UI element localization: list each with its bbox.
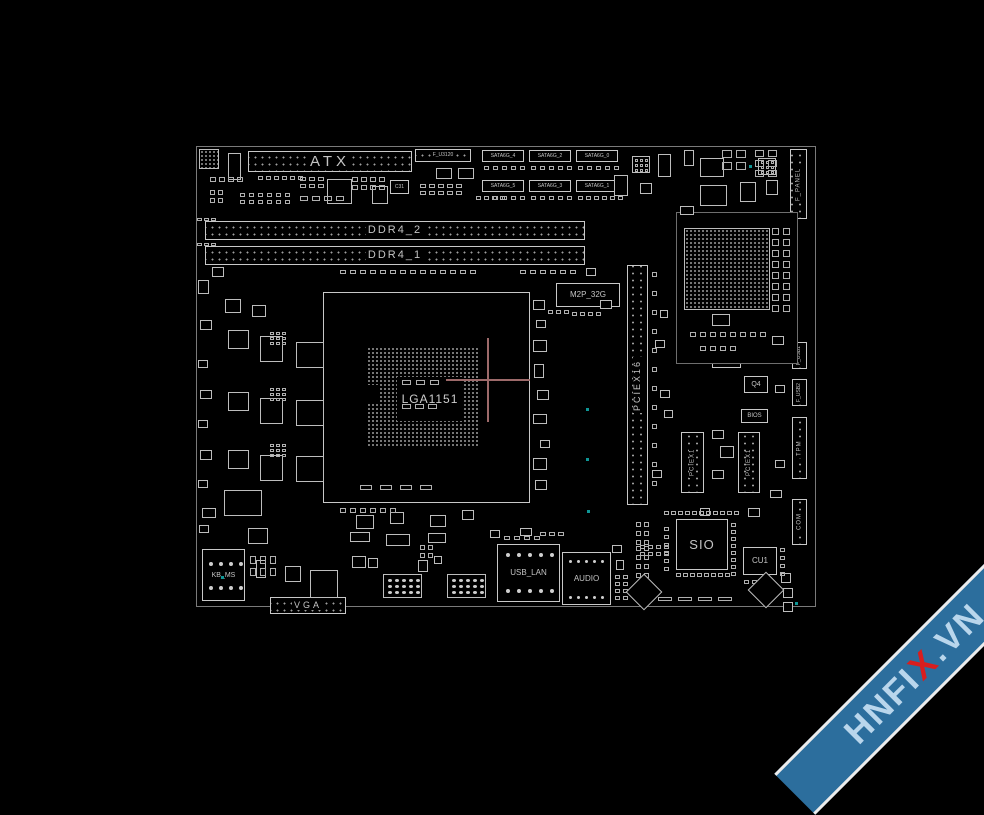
pin-dot [601,560,604,563]
pin-dot [209,586,213,590]
component-box [198,280,209,294]
component-box [434,556,442,564]
component-box [748,508,760,517]
cpu-socket[interactable]: LGA1151 [323,292,530,503]
pad [460,270,466,274]
pad [766,161,769,164]
component-box [520,528,532,536]
component-box [200,320,212,330]
pad [531,196,536,200]
pad [420,485,432,490]
pad [312,196,320,201]
net-highlight-dot [587,510,590,513]
pad [197,243,202,246]
pad [402,380,411,385]
kb-ms-connector[interactable]: KB_MS [202,549,245,601]
ddr4-1-slot[interactable]: DDR4_1 [205,246,585,265]
pin-dot [480,579,484,582]
pad [502,196,507,200]
pad [615,589,620,593]
pad [420,184,426,188]
pad [780,556,785,560]
pad [447,191,453,195]
pad [615,575,620,579]
component-box [533,414,547,424]
pad [270,454,274,457]
pin-dot [416,585,420,588]
cu1-chip[interactable]: CU1 [743,547,777,575]
pad [531,166,536,170]
q4-component[interactable]: Q4 [744,376,768,393]
vga-connector-label: VGA [292,601,324,610]
pin-dot [229,586,233,590]
pad [652,443,657,448]
component-box [712,430,724,439]
component-box [684,150,694,166]
component-box [200,450,212,460]
pad [761,166,764,169]
pad [402,404,411,409]
f-panel-header-label: F_PANEL [796,165,802,202]
c31-component[interactable]: C31 [390,180,409,194]
pad [282,454,286,457]
pin-dot [388,579,392,582]
pad [276,337,280,340]
pad [720,511,725,515]
pad [476,196,481,200]
pad [652,348,657,353]
pin-dot [480,585,484,588]
pad [415,404,424,409]
pin-dot [395,591,399,594]
f-u3120-header[interactable]: F_U3120 [415,149,471,162]
component-box [775,460,785,468]
pin-dot [550,589,554,593]
pad [645,164,648,167]
pad [380,485,392,490]
pad [352,185,358,190]
pad [623,575,628,579]
pad [636,564,641,569]
pad [727,511,732,515]
pad [282,342,286,345]
component-box [535,480,547,490]
pad [218,190,223,195]
pad [722,150,732,158]
pad [656,545,661,549]
pad [652,405,657,410]
component-box [212,267,224,277]
component-box [655,340,665,348]
pad [370,185,376,190]
pad [652,462,657,467]
pad [699,511,704,515]
pad [502,166,507,170]
pad [623,596,628,600]
sata6g-1-connector-label: SATA6G_1 [583,184,612,189]
pad [549,196,554,200]
pad [678,597,692,601]
pad [710,332,716,337]
pin-dot [585,596,588,599]
component-box [356,515,374,529]
pad [276,193,281,197]
pad [578,196,583,200]
pad [678,511,683,515]
pad [602,196,607,200]
pad [340,270,346,274]
pad [350,270,356,274]
pad [596,312,601,316]
component-box [248,528,268,544]
sata6g-3-connector-label: SATA6G_3 [536,184,565,189]
component-box [533,340,547,352]
pin-dot [480,591,484,594]
component-box [783,602,793,612]
pad [240,193,245,197]
cu1-chip-label: CU1 [750,557,770,565]
pad [783,239,790,246]
pad [240,200,245,204]
component-box [533,458,547,470]
pad [656,552,661,556]
pad [350,508,356,513]
pad [534,536,540,540]
f-panel-header[interactable]: F_PANEL [790,149,807,219]
pad [258,176,263,180]
pin-dot [459,585,463,588]
pad [635,159,638,162]
component-box [586,268,596,276]
pad [780,564,785,568]
component-box [228,153,241,180]
pad [260,568,266,576]
component-box [260,398,283,424]
pad [700,346,706,351]
pciex1-2-slot-label: PCIEX1 [746,447,752,478]
pad [270,556,276,564]
pad [520,196,525,200]
pad [282,393,286,396]
pad [664,535,669,539]
pad [783,261,790,268]
pad [470,270,476,274]
ddr4-2-slot-label: DDR4_2 [366,225,424,236]
pad [550,270,556,274]
com-header-label: COM [797,512,803,533]
pin-dot [569,596,572,599]
pad [430,380,439,385]
pad [549,532,555,536]
pad [340,508,346,513]
pad [610,196,615,200]
net-highlight-dot [749,165,752,168]
ddr4-2-slot[interactable]: DDR4_2 [205,221,585,240]
component-box [640,183,652,194]
pad [772,250,779,257]
pad [783,250,790,257]
sata6g-5-connector-label: SATA6G_5 [489,184,518,189]
pad [282,332,286,335]
pad [260,556,266,564]
pad [605,166,610,170]
pad [664,552,669,556]
pad [270,568,276,576]
component-box [225,299,241,313]
pad [636,522,641,527]
pad [731,523,736,527]
pad [514,536,520,540]
pad [740,332,746,337]
pad [766,171,769,174]
pad [336,196,344,201]
pad [734,511,739,515]
pad [361,185,367,190]
pad [276,393,280,396]
pad [210,190,215,195]
pad [772,283,779,290]
pad [596,166,601,170]
pad [380,508,386,513]
pad [588,312,593,316]
pad [309,177,315,181]
pad [540,166,545,170]
pad [652,329,657,334]
pad [652,310,657,315]
sata6g-4-connector[interactable]: SATA6G_4 [482,150,524,162]
pin-dot [517,589,521,593]
pad [671,511,676,515]
pad [218,198,223,203]
pciex1-1-slot[interactable]: PCIEX1 [681,432,704,493]
pad [282,176,287,180]
pad [658,597,672,601]
pad [697,573,702,577]
pad [204,243,209,246]
sata6g-2-connector[interactable]: SATA6G_2 [529,150,571,162]
component-box [680,206,694,215]
socket-notch [367,385,379,403]
pad [420,545,425,550]
pad [567,196,572,200]
pciex1-2-slot[interactable]: PCIEX1 [738,432,760,493]
pad [755,150,764,157]
bios-chip[interactable]: BIOS [741,409,768,423]
pad [276,449,280,452]
pad [558,532,564,536]
usb-lan-connector-label: USB_LAN [508,569,548,577]
pin-dot [577,596,580,599]
pad [228,177,234,182]
pad [270,388,274,391]
pin-dot [466,585,470,588]
pin-dot [528,553,532,557]
pad [210,198,215,203]
pad [249,200,254,204]
component-box [660,390,670,398]
component-box [202,508,216,518]
pad [282,449,286,452]
component-box [614,175,628,196]
q4-component-label: Q4 [749,381,762,388]
component-box [700,158,724,177]
pad [772,272,779,279]
pad [379,185,385,190]
pin-dot [593,560,596,563]
pad [282,398,286,401]
sata6g-0-connector[interactable]: SATA6G_0 [576,150,618,162]
pin-dot [528,589,532,593]
component-box [350,532,370,542]
m2p-32g-slot-label: M2P_32G [568,291,608,299]
pad [640,545,645,549]
pciex16-slot[interactable]: PCIEX16 [627,265,648,505]
pad [540,196,545,200]
cursor-crosshair-vertical [487,338,489,422]
pin-dot [593,596,596,599]
pad [211,218,216,221]
ddr4-1-slot-label: DDR4_1 [366,250,424,261]
pin-dot [539,589,543,593]
component-box [436,168,452,179]
pad [270,398,274,401]
pin-dot [409,579,413,582]
pad [780,548,785,552]
pad [587,166,592,170]
component-box [260,455,283,481]
pad [652,481,657,486]
component-box [199,525,209,533]
pad [731,537,736,541]
vga-connector[interactable]: VGA [270,597,346,614]
component-box [537,390,549,400]
pad [420,553,425,558]
pad [558,196,563,200]
sata6g-4-connector-label: SATA6G_4 [489,154,518,159]
component-box [198,360,208,368]
pad [438,184,444,188]
pin-dot [452,579,456,582]
pciex1-1-slot-label: PCIEX1 [690,447,696,478]
pad [783,305,790,312]
pad [524,536,530,540]
component-box [285,566,301,582]
pad [440,270,446,274]
component-box [418,560,428,572]
pad [644,531,649,536]
pin-dot [209,562,213,566]
atx-connector-label: ATX [308,154,352,169]
component-box [534,364,544,378]
component-box [770,490,782,498]
com-header[interactable]: COM [792,499,807,545]
pad [266,176,271,180]
pad [511,166,516,170]
net-highlight-dot [795,602,798,605]
pad [360,508,366,513]
pin-dot [219,562,223,566]
pad [664,511,669,515]
pad [640,164,643,167]
pin-dot [466,579,470,582]
pad [484,196,489,200]
pad [270,342,274,345]
pin-dot [473,579,477,582]
component-box [228,450,249,469]
component-box [490,530,500,538]
pad [276,444,280,447]
pin-dot [402,591,406,594]
pin-dot [585,560,588,563]
pad [594,196,599,200]
pad [390,270,396,274]
pad [210,177,216,182]
component-box [200,390,212,399]
atx-connector[interactable]: ATX [248,151,412,172]
pad [718,597,732,601]
pin-dot [466,591,470,594]
f-usb2-header[interactable]: F_USB2 [792,379,807,406]
pad [360,270,366,274]
pad [766,166,769,169]
sata6g-3-connector[interactable]: SATA6G_3 [529,180,571,192]
sio-chip[interactable]: SIO [676,519,728,570]
pad [285,193,290,197]
component-box [352,556,366,568]
pad [267,200,272,204]
pad [400,270,406,274]
pin-dot [395,579,399,582]
pad [731,551,736,555]
pin-dot [402,585,406,588]
pad [615,596,620,600]
pad [690,573,695,577]
sata6g-2-connector-label: SATA6G_2 [536,154,565,159]
pad [700,332,706,337]
pad [380,270,386,274]
pad [237,177,243,182]
pad [640,169,643,172]
component-box [712,314,730,326]
pad [282,337,286,340]
pad [484,166,489,170]
pad [276,388,280,391]
pad [772,228,779,235]
pad [429,184,435,188]
component-box [652,470,662,478]
component-box [296,400,324,426]
pin-dot [388,585,392,588]
sata6g-5-connector[interactable]: SATA6G_5 [482,180,524,192]
sata6g-1-connector[interactable]: SATA6G_1 [576,180,618,192]
pad [270,449,274,452]
pin-dot [409,585,413,588]
pad [390,508,396,513]
pad [274,176,279,180]
component-box [533,300,545,310]
pin-dot [577,560,580,563]
component-box [775,385,785,393]
pad [285,200,290,204]
tpm-header[interactable]: TPM [792,417,807,479]
pad [560,270,566,274]
pad [744,580,749,584]
pad [730,346,736,351]
component-box [296,342,324,368]
pad [578,166,583,170]
pad [456,184,462,188]
pad [676,573,681,577]
